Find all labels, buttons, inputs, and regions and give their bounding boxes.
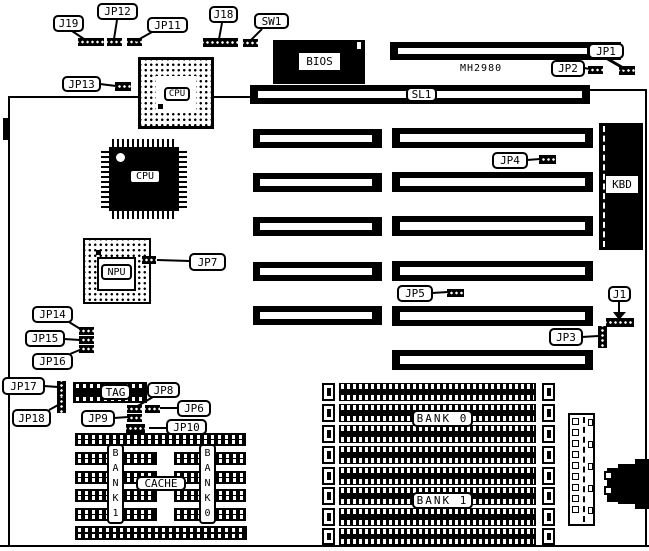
power-connector-dashes xyxy=(583,417,585,522)
board-edge-bottom xyxy=(0,545,649,547)
leader-jp12 xyxy=(114,20,117,39)
cpu-leads-bottom xyxy=(112,211,176,219)
callout-jp7: JP7 xyxy=(189,253,226,271)
callout-jp5: JP5 xyxy=(397,285,433,302)
jumper-jp8 xyxy=(127,405,142,413)
callout-jp11: JP11 xyxy=(147,17,188,33)
cpu-socket-pin1 xyxy=(158,104,163,109)
header-j19 xyxy=(78,38,104,46)
bios-pin1-notch xyxy=(357,42,361,49)
kbd-chip-dashes xyxy=(603,126,605,247)
leader-j18 xyxy=(219,23,222,39)
callout-jp12: JP12 xyxy=(97,3,138,20)
isa-slot-left-1 xyxy=(253,129,382,148)
npu-pin1-dot xyxy=(96,250,101,255)
tag-label: TAG xyxy=(100,384,131,400)
jumper-jp15 xyxy=(79,336,94,344)
simm-socket xyxy=(322,446,555,464)
leader-jp15 xyxy=(64,339,80,340)
jumper-jp18 xyxy=(57,397,66,413)
leader-jp9 xyxy=(114,417,128,418)
keyboard-din-slot xyxy=(604,471,613,480)
callout-j1: J1 xyxy=(608,286,631,302)
isa-slot-left-3 xyxy=(253,217,382,236)
cache-label: CACHE xyxy=(136,476,186,491)
callout-jp14: JP14 xyxy=(32,306,73,323)
bank1-label: BANK 1 xyxy=(412,492,473,509)
board-edge-notch xyxy=(3,118,8,140)
isa-slot-left-2 xyxy=(253,173,382,192)
jumper-jp1 xyxy=(619,66,635,75)
callout-jp8: JP8 xyxy=(147,382,180,398)
jumper-jp17 xyxy=(57,381,66,397)
isa-slot-left-5 xyxy=(253,306,382,325)
jumper-jp3 xyxy=(598,326,607,348)
cpu-leads-left xyxy=(101,150,109,208)
callout-j18: J18 xyxy=(209,6,238,23)
isa-slot-right-6 xyxy=(392,350,593,370)
jumper-jp9 xyxy=(127,414,142,422)
slot-top xyxy=(390,42,621,60)
isa-slot-right-4 xyxy=(392,261,593,281)
callout-jp3: JP3 xyxy=(549,328,583,346)
bank0-label: BANK 0 xyxy=(412,410,473,427)
header-sw1 xyxy=(243,39,258,47)
callout-jp6: JP6 xyxy=(177,400,211,417)
callout-j19: J19 xyxy=(53,15,84,32)
header-j18 xyxy=(203,38,238,47)
callout-jp1: JP1 xyxy=(588,43,624,59)
npu-label: NPU xyxy=(101,264,132,280)
jumper-jp7 xyxy=(142,256,156,264)
callout-jp2: JP2 xyxy=(551,60,585,77)
jumper-jp4 xyxy=(539,155,556,164)
leader-jp17 xyxy=(44,386,58,387)
cache-bank1-label: BANK1 xyxy=(107,444,124,524)
simm-socket xyxy=(322,508,555,526)
header-j1 xyxy=(606,318,634,327)
keyboard-din-slot xyxy=(604,486,613,495)
callout-jp15: JP15 xyxy=(25,330,65,347)
cache-chip-row-top xyxy=(75,433,246,446)
callout-jp13: JP13 xyxy=(62,76,101,92)
callout-jp17: JP17 xyxy=(2,377,45,395)
board-model: MH2980 xyxy=(460,63,520,76)
callout-sw1: SW1 xyxy=(254,13,289,29)
cpu-leads-top xyxy=(112,139,176,147)
cpu-chip-label: CPU xyxy=(129,169,161,184)
isa-slot-left-4 xyxy=(253,262,382,281)
isa-slot-right-3 xyxy=(392,216,593,236)
kbd-label: KBD xyxy=(606,176,638,193)
callout-jp16: JP16 xyxy=(32,353,73,370)
isa-slot-right-1 xyxy=(392,128,593,148)
jumper-jp6 xyxy=(145,405,160,413)
jumper-jp14 xyxy=(79,327,94,335)
cache-bank0-label: BANK0 xyxy=(199,444,216,524)
jumper-jp10 xyxy=(126,424,145,433)
jumper-jp2 xyxy=(588,66,603,74)
cpu-socket-label: CPU xyxy=(164,87,190,101)
callout-jp4: JP4 xyxy=(492,152,528,169)
isa-slot-right-2 xyxy=(392,172,593,192)
simm-socket xyxy=(322,528,555,545)
keyboard-din-connector-tab xyxy=(635,459,649,509)
simm-socket xyxy=(322,467,555,485)
cache-chip-row-bottom xyxy=(75,526,247,540)
leader-jp13 xyxy=(100,84,116,86)
simm-socket xyxy=(322,383,555,401)
motherboard-diagram: BIOS MH2980 JP1 JP2 SL1 KBD JP4 JP5 J1 J… xyxy=(0,0,649,551)
header-jp12 xyxy=(107,38,122,46)
callout-jp9: JP9 xyxy=(81,410,115,427)
leader-jp5 xyxy=(432,292,448,293)
board-edge-left xyxy=(8,96,10,547)
bios-label: BIOS xyxy=(299,53,340,70)
sl1-label: SL1 xyxy=(406,87,437,102)
callout-jp18: JP18 xyxy=(12,409,51,427)
cpu-leads-right xyxy=(179,150,187,208)
cpu-pin1-dot xyxy=(116,153,125,162)
jumper-jp13 xyxy=(115,82,131,91)
header-jp11 xyxy=(127,38,142,46)
simm-socket xyxy=(322,425,555,443)
jumper-jp5 xyxy=(447,289,464,297)
isa-slot-right-5 xyxy=(392,306,593,326)
leader-jp7 xyxy=(157,260,190,261)
leader-jp3 xyxy=(582,336,598,337)
callout-jp10: JP10 xyxy=(166,419,207,435)
jumper-jp16 xyxy=(79,345,94,353)
